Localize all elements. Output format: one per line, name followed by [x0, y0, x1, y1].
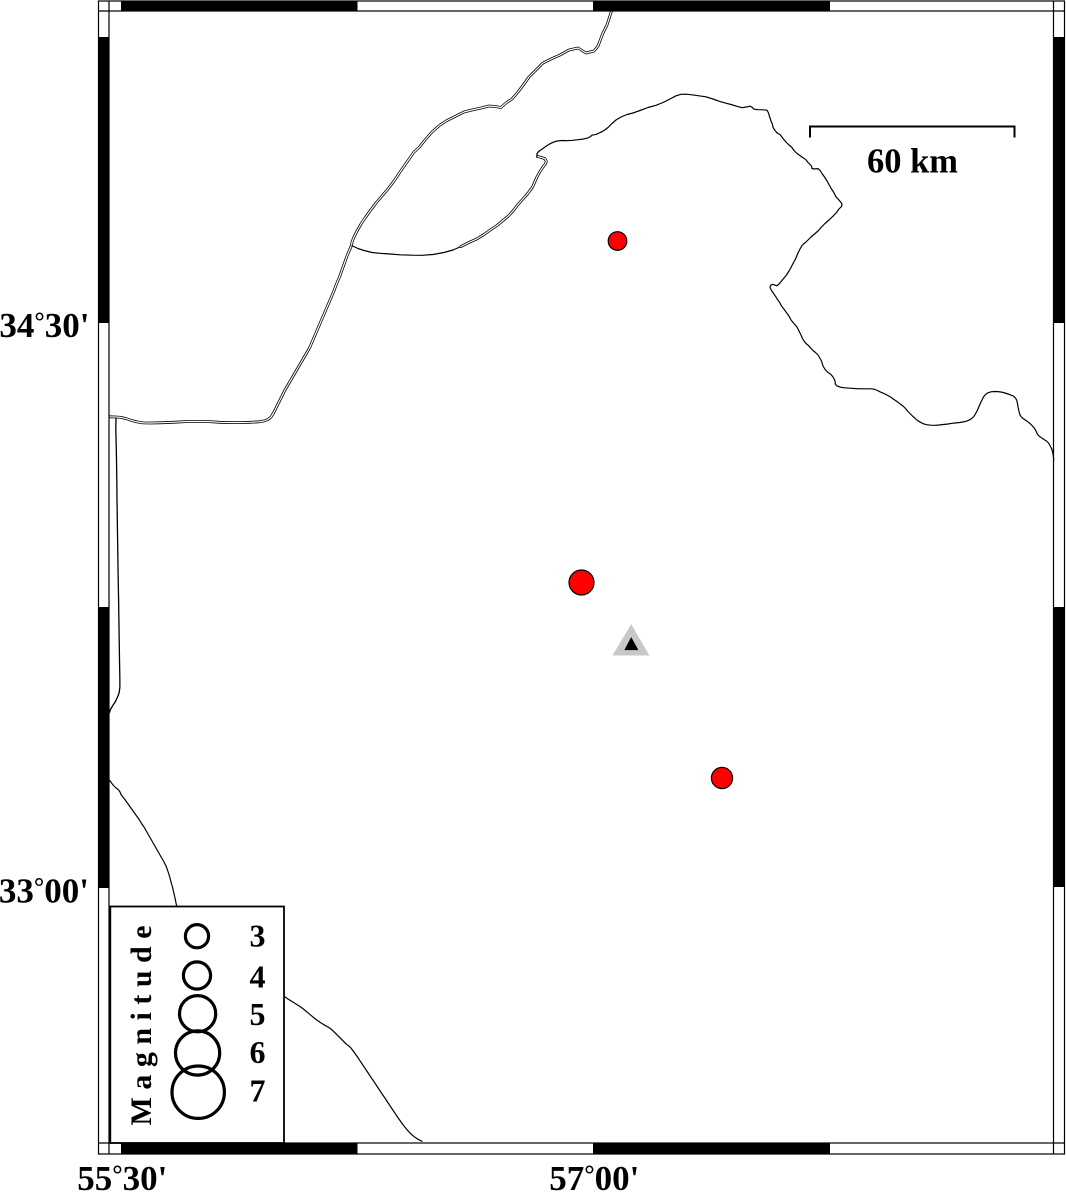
svg-text:57°00': 57°00' — [549, 1159, 639, 1192]
svg-text:5: 5 — [250, 996, 266, 1032]
svg-text:60 km: 60 km — [867, 143, 958, 181]
svg-text:6: 6 — [250, 1034, 266, 1070]
svg-text:3: 3 — [250, 917, 266, 953]
svg-text:34°30': 34°30' — [0, 306, 90, 345]
svg-text:33°00': 33°00' — [0, 872, 89, 911]
svg-text:7: 7 — [250, 1072, 266, 1108]
svg-text:Magnitude: Magnitude — [125, 918, 158, 1126]
svg-text:55°30': 55°30' — [77, 1159, 167, 1192]
svg-text:4: 4 — [250, 959, 266, 995]
